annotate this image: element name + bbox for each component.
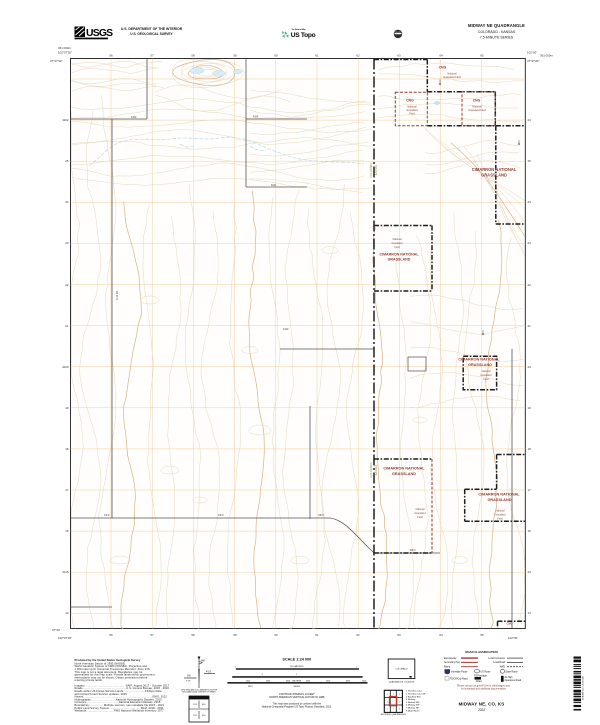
svg-text:58: 58	[191, 54, 195, 58]
svg-text:60: 60	[274, 633, 278, 637]
svg-text:National: National	[482, 370, 491, 373]
svg-text:NORTH AMERICAN VERTICAL DATUM: NORTH AMERICAN VERTICAL DATUM OF 1988	[269, 696, 325, 699]
svg-text:for (metadata) and additional: for (metadata) and additional documentat…	[461, 688, 507, 691]
svg-text:CNG: CNG	[506, 622, 512, 626]
svg-text:8 Midwl North: 8 Midwl North	[406, 709, 420, 712]
svg-text:24: 24	[528, 365, 532, 369]
svg-text:102°00': 102°00'	[508, 636, 518, 640]
svg-text:Grassland: Grassland	[415, 512, 427, 515]
svg-text:CIMARRON NATIONAL: CIMARRON NATIONAL	[383, 467, 425, 471]
svg-text:2: 2	[393, 694, 394, 696]
svg-text:25: 25	[65, 159, 69, 163]
svg-text:5 Midwell NW: 5 Midwell NW	[406, 702, 420, 704]
svg-text:KANSAS: KANSAS	[374, 164, 378, 175]
svg-text:37°37'30": 37°37'30"	[50, 59, 62, 63]
svg-text:56: 56	[109, 54, 113, 58]
svg-text:KILOMETERS: KILOMETERS	[290, 666, 304, 668]
svg-text:Local Road: Local Road	[493, 662, 505, 664]
svg-text:361 000m: 361 000m	[540, 54, 553, 58]
svg-text:CNG: CNG	[406, 99, 414, 103]
svg-text:National: National	[416, 508, 425, 511]
svg-text:GRASSLAND: GRASSLAND	[481, 173, 507, 178]
svg-text:16: 16	[65, 529, 69, 533]
svg-text:59: 59	[233, 54, 237, 58]
svg-text:Field: Field	[394, 246, 400, 249]
svg-text:State Route: State Route	[506, 670, 519, 673]
svg-text:Expressway: Expressway	[444, 657, 457, 660]
svg-text:19: 19	[528, 406, 532, 410]
svg-text:6: 6	[387, 709, 388, 711]
svg-text:24: 24	[528, 118, 532, 122]
svg-text:37°37'30": 37°37'30"	[527, 59, 539, 63]
svg-text:DECLINATION AT CENTER OF SHEET: DECLINATION AT CENTER OF SHEET	[182, 691, 216, 694]
svg-text:CIMARRON NATIONAL: CIMARRON NATIONAL	[458, 358, 500, 362]
svg-text:4 Midway: 4 Midway	[406, 699, 416, 701]
svg-text:FEET: FEET	[248, 686, 254, 688]
svg-text:COLORADO - KANSAS: COLORADO - KANSAS	[478, 30, 516, 34]
svg-text:7 Midway NE: 7 Midway NE	[406, 708, 419, 710]
svg-text:65: 65	[480, 633, 484, 637]
svg-text:37°30': 37°30'	[52, 628, 61, 632]
svg-text:Grassland Field: Grassland Field	[468, 109, 486, 112]
svg-text:2 Sheridan Lake SE: 2 Sheridan Lake SE	[406, 693, 426, 696]
svg-text:CR Z: CR Z	[218, 514, 224, 517]
svg-text:17: 17	[65, 488, 69, 492]
svg-text:59: 59	[233, 633, 237, 637]
svg-text:60: 60	[274, 54, 278, 58]
svg-text:6000: 6000	[346, 680, 350, 682]
svg-text:62: 62	[356, 54, 360, 58]
svg-text:CIMARRON NATIONAL: CIMARRON NATIONAL	[478, 493, 520, 497]
svg-text:65: 65	[480, 54, 484, 58]
svg-text:4162: 4162	[62, 118, 69, 122]
svg-text:National Geospatial Program US: National Geospatial Program US Topo Prod…	[262, 706, 332, 709]
svg-text:4120: 4120	[283, 328, 289, 331]
svg-text:4: 4	[387, 701, 388, 703]
svg-text:24: 24	[528, 570, 532, 574]
svg-text:US Route: US Route	[481, 670, 492, 673]
svg-text:4°19': 4°19'	[206, 672, 212, 674]
svg-text:14: 14	[528, 611, 532, 615]
svg-text:21: 21	[528, 324, 532, 328]
svg-text:COLORADO: COLORADO	[369, 463, 373, 478]
svg-text:N 10 RD: N 10 RD	[116, 291, 119, 300]
svg-text:0°19': 0°19'	[186, 681, 191, 683]
svg-text:GN: GN	[187, 676, 191, 678]
svg-text:4WD: 4WD	[500, 667, 505, 669]
svg-text:4120: 4120	[62, 365, 69, 369]
svg-text:MN: MN	[201, 661, 205, 663]
svg-text:102°07'30": 102°07'30"	[58, 636, 72, 640]
svg-text:4162: 4162	[131, 116, 137, 119]
svg-text:4115: 4115	[62, 570, 69, 574]
svg-text:3 Bradford Bell: 3 Bradford Bell	[406, 695, 421, 698]
svg-text:4000: 4000	[306, 680, 310, 682]
svg-text:Field: Field	[417, 516, 423, 519]
svg-text:1: 1	[356, 667, 357, 669]
svg-text:102°07'30": 102°07'30"	[58, 51, 72, 55]
svg-text:5000: 5000	[326, 680, 330, 682]
svg-text:4k-High: 4k-High	[505, 677, 514, 679]
svg-text:ROAD CLASSIFICATION: ROAD CLASSIFICATION	[465, 650, 497, 654]
svg-text:Grassland: Grassland	[495, 514, 507, 517]
svg-text:361 000m: 361 000m	[58, 46, 71, 50]
svg-text:4104: 4104	[253, 116, 259, 119]
svg-text:CNG: CNG	[439, 66, 447, 70]
svg-text:entering private lands.: entering private lands.	[75, 678, 103, 682]
svg-text:3000: 3000	[286, 680, 290, 682]
svg-text:23: 23	[65, 241, 69, 245]
svg-text:GRASSLAND: GRASSLAND	[487, 498, 511, 502]
svg-text:Grassland Field: Grassland Field	[443, 76, 461, 79]
svg-text:Road: Road	[476, 681, 482, 683]
svg-text:2000: 2000	[266, 680, 270, 682]
svg-text:63: 63	[397, 54, 401, 58]
svg-text:U.S. DEPARTMENT OF THE INTERIO: U.S. DEPARTMENT OF THE INTERIOR	[121, 27, 183, 31]
svg-text:USGS: USGS	[86, 28, 113, 39]
svg-text:64: 64	[439, 54, 443, 58]
svg-text:Ramp: Ramp	[444, 667, 451, 669]
svg-text:Wetlands......................: Wetlands................................…	[75, 709, 165, 713]
svg-text:24: 24	[528, 200, 532, 204]
svg-text:58: 58	[191, 633, 195, 637]
svg-text:Clearance Road: Clearance Road	[505, 679, 522, 682]
svg-text:SCALE 1:24 000: SCALE 1:24 000	[282, 657, 311, 661]
svg-text:Grassland: Grassland	[392, 242, 404, 245]
svg-text:FS/CR/City Road: FS/CR/City Road	[450, 678, 468, 681]
svg-text:Field: Field	[409, 113, 415, 116]
svg-text:1 Sheridan Lake: 1 Sheridan Lake	[406, 690, 423, 693]
svg-text:56: 56	[109, 633, 113, 637]
svg-text:CR Z: CR Z	[318, 514, 324, 517]
svg-text:US Topo: US Topo	[291, 32, 316, 39]
svg-text:GRASSLAND: GRASSLAND	[468, 363, 492, 367]
svg-text:FS/Frontage: FS/Frontage	[474, 675, 487, 678]
svg-text:Interstate Route: Interstate Route	[451, 670, 468, 673]
svg-text:1000: 1000	[246, 680, 250, 682]
svg-text:Grassland: Grassland	[481, 374, 493, 377]
svg-text:22: 22	[65, 283, 69, 287]
svg-text:CNG: CNG	[473, 99, 481, 103]
svg-text:MIDWAY NE QUADRANGLE: MIDWAY NE QUADRANGLE	[468, 23, 525, 28]
svg-text:RD 4: RD 4	[410, 549, 416, 552]
svg-text:QUADRANGLE LOCATION: QUADRANGLE LOCATION	[389, 680, 415, 683]
svg-text:7: 7	[393, 709, 394, 711]
svg-text:1: 1	[387, 694, 388, 696]
svg-text:61: 61	[315, 633, 319, 637]
svg-text:NGA REF NO. USGSX24K: NGA REF NO. USGSX24K	[582, 675, 585, 700]
svg-text:3: 3	[399, 694, 400, 696]
svg-text:57: 57	[150, 633, 154, 637]
svg-text:Field: Field	[497, 518, 503, 521]
svg-text:National: National	[496, 510, 505, 513]
svg-text:GRASSLAND: GRASSLAND	[392, 472, 416, 476]
svg-text:64: 64	[439, 633, 443, 637]
svg-text:17: 17	[528, 488, 532, 492]
svg-text:Secondary Hwy: Secondary Hwy	[444, 661, 461, 664]
svg-text:7000: 7000	[362, 680, 366, 682]
svg-text:23: 23	[528, 241, 532, 245]
svg-text:MILES: MILES	[294, 686, 301, 688]
svg-text:U.S. GEOLOGICAL SURVEY: U.S. GEOLOGICAL SURVEY	[130, 32, 173, 36]
svg-text:COLORADO: COLORADO	[369, 163, 373, 178]
svg-text:18: 18	[528, 447, 532, 451]
svg-text:6 Midway SW: 6 Midway SW	[406, 705, 420, 707]
svg-text:19: 19	[65, 406, 69, 410]
svg-text:CIMARRON NATIONAL: CIMARRON NATIONAL	[379, 253, 419, 257]
svg-text:The National Map: The National Map	[292, 28, 306, 31]
svg-text:7.5-MINUTE SERIES: 7.5-MINUTE SERIES	[480, 36, 514, 40]
svg-text:Produced by the United States: Produced by the United States Geological…	[75, 658, 141, 662]
svg-text:METERS: METERS	[292, 680, 301, 682]
svg-text:CR Z: CR Z	[104, 514, 110, 517]
svg-text:KANSAS: KANSAS	[374, 464, 378, 475]
svg-text:21: 21	[65, 324, 69, 328]
svg-text:102°00': 102°00'	[527, 51, 537, 55]
svg-text:63: 63	[397, 633, 401, 637]
svg-text:GRASSLAND: GRASSLAND	[388, 258, 411, 262]
svg-text:22: 22	[528, 283, 532, 287]
svg-text:2022: 2022	[478, 708, 485, 712]
svg-text:National: National	[393, 238, 402, 241]
svg-text:61: 61	[315, 54, 319, 58]
svg-text:Please visit go.usa.gov/xFCeh: Please visit go.usa.gov/xFCeh for orthoi…	[457, 685, 510, 688]
svg-text:62: 62	[356, 633, 360, 637]
svg-text:14: 14	[65, 611, 69, 615]
svg-text:ADJOINING QUADRANGLES: ADJOINING QUADRANGLES	[381, 713, 407, 716]
svg-text:CIMARRON NATIONAL: CIMARRON NATIONAL	[472, 167, 517, 172]
svg-text:16: 16	[528, 529, 532, 533]
svg-text:Field: Field	[483, 378, 489, 381]
svg-text:25: 25	[528, 159, 532, 163]
svg-text:Local Connector: Local Connector	[488, 657, 505, 660]
svg-text:MIDWAY NE, CO, KS: MIDWAY NE, CO, KS	[459, 701, 505, 706]
svg-text:5: 5	[399, 701, 400, 703]
svg-text:57: 57	[150, 54, 154, 58]
svg-text:8: 8	[399, 709, 400, 711]
svg-text:4041: 4041	[271, 184, 277, 187]
svg-text:1: 1	[235, 667, 236, 669]
svg-text:COLORADO: COLORADO	[395, 668, 408, 671]
svg-text:24: 24	[65, 200, 69, 204]
svg-text:18: 18	[65, 447, 69, 451]
